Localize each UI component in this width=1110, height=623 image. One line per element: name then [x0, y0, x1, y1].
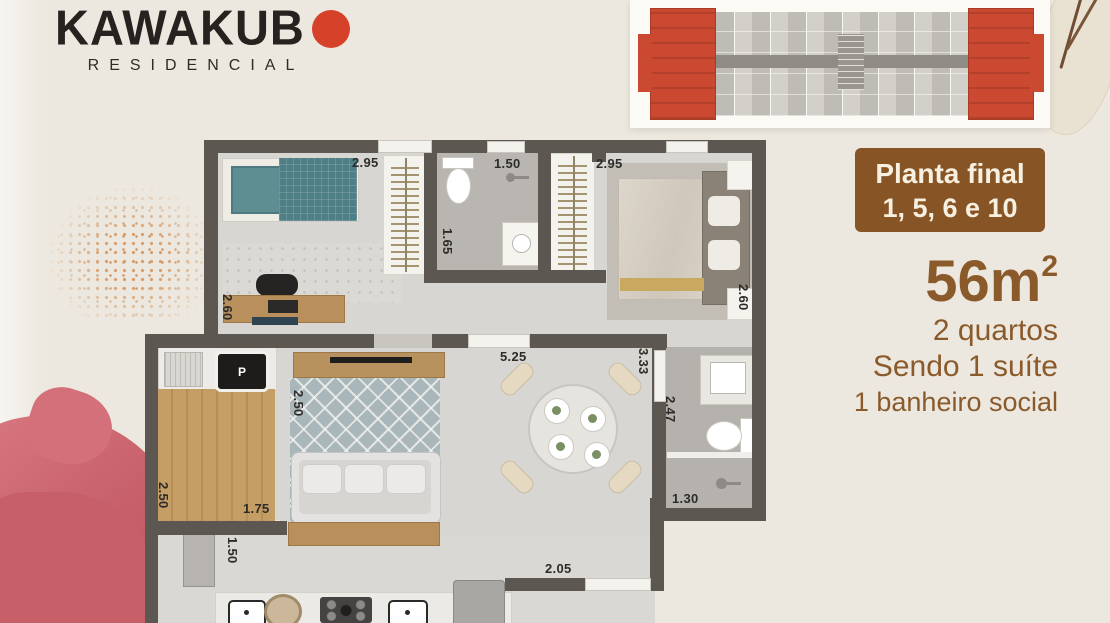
- area-value: 56m 2: [770, 252, 1058, 313]
- hangers-icon: [391, 162, 419, 268]
- tv-sideboard: [293, 352, 445, 378]
- refrigerator: [453, 580, 505, 623]
- red-sun-dot-icon: [312, 10, 350, 48]
- area-superscript: 2: [1041, 252, 1058, 282]
- dim-living-width: 5.25: [500, 350, 527, 363]
- hangers-icon: [558, 160, 587, 267]
- bed-blanket-teal: [279, 158, 357, 221]
- wardrobe-bedroom2: [383, 155, 427, 275]
- dim-balcony-depth: 2.50: [157, 482, 170, 509]
- wall: [538, 140, 551, 280]
- shower-divider: [667, 452, 753, 458]
- dim-balcony-width: 1.75: [243, 502, 270, 515]
- window: [666, 141, 708, 153]
- office-chair: [256, 274, 298, 296]
- feature-bathroom: 1 banheiro social: [770, 385, 1058, 419]
- window: [585, 578, 651, 591]
- sofa-cushion: [344, 464, 384, 494]
- console-table: [288, 522, 440, 546]
- pass-through-opening: [374, 334, 432, 348]
- place-setting: [580, 406, 606, 432]
- dim-suite-bath-depth: 1.65: [441, 228, 454, 255]
- tv-icon: [330, 357, 412, 363]
- stove-cooktop: [320, 597, 372, 623]
- paint-speckles-orange: [48, 185, 203, 320]
- bed-throw-tan: [620, 278, 704, 291]
- place-setting: [584, 442, 610, 468]
- place-setting: [544, 398, 570, 424]
- unit-specs: 56m 2 2 quartos Sendo 1 suíte 1 banheiro…: [770, 252, 1058, 419]
- wall: [424, 270, 606, 283]
- laundry-sink-mark: P: [238, 365, 246, 379]
- dim-tv-area-depth: 2.50: [292, 390, 305, 417]
- plan-badge: Planta final 1, 5, 6 e 10: [855, 148, 1045, 232]
- badge-title: Planta final: [875, 156, 1024, 192]
- shower-arm-icon: [725, 482, 741, 485]
- kitchen-sink: [388, 600, 428, 623]
- badge-units: 1, 5, 6 e 10: [882, 192, 1017, 224]
- bed-pillow: [708, 240, 740, 270]
- toilet-bowl: [706, 421, 742, 451]
- sink-basin-icon: [710, 362, 746, 394]
- keyplan-highlighted-unit-right: [968, 8, 1034, 120]
- dim-office-depth: 2.60: [221, 294, 234, 321]
- rug-bedroom2: [222, 243, 402, 303]
- brand-name: KAWAKUB: [55, 3, 305, 52]
- sofa-cushion: [386, 464, 426, 494]
- laundry-sink: P: [215, 351, 269, 392]
- feature-bedrooms: 2 quartos: [770, 313, 1058, 349]
- dim-kitchen-width: 2.05: [545, 562, 572, 575]
- keyplan-highlighted-unit-left-wing: [638, 34, 652, 92]
- window: [487, 141, 525, 153]
- dim-bedroom1-depth: 2.60: [737, 284, 750, 311]
- wall: [650, 498, 664, 591]
- wall: [204, 140, 218, 340]
- door-opening: [468, 334, 530, 348]
- door-opening: [654, 350, 666, 402]
- wardrobe-bedroom1: [550, 153, 595, 274]
- kitchen-sink: [228, 600, 266, 623]
- brand-subtitle: RESIDENCIAL: [62, 57, 330, 75]
- bed-pillow: [708, 196, 740, 226]
- kitchen-cabinet: [183, 530, 215, 587]
- wall: [652, 508, 766, 521]
- dim-social-bath-width: 1.30: [672, 492, 699, 505]
- dim-bedroom2-width: 2.95: [352, 156, 379, 169]
- keyplan-card: [630, 0, 1050, 128]
- area-number: 56m: [925, 252, 1041, 313]
- keyplan-highlighted-unit-left: [650, 8, 716, 120]
- flyer-canvas: KAWAKUB RESIDENCIAL Planta final 1, 5, 6…: [0, 0, 1110, 623]
- brand-logo: KAWAKUB: [55, 4, 350, 51]
- wall: [145, 334, 158, 623]
- keyplan-stair-core: [838, 34, 864, 90]
- dim-bedroom1-width: 2.95: [596, 157, 623, 170]
- sink-basin-icon: [512, 234, 531, 253]
- fruit-bowl-icon: [264, 594, 302, 623]
- washboard-icon: [164, 352, 203, 387]
- bed-pillow-teal: [231, 166, 281, 214]
- window: [378, 140, 432, 153]
- wall: [505, 578, 587, 591]
- keyboard-icon: [252, 317, 298, 325]
- laptop-icon: [268, 300, 298, 313]
- place-setting: [548, 434, 574, 460]
- feature-suite: Sendo 1 suíte: [770, 349, 1058, 385]
- dim-living-depth: 3.33: [637, 348, 650, 375]
- dim-service-corridor: 1.50: [226, 537, 239, 564]
- keyplan-highlighted-unit-right-wing: [1030, 34, 1044, 92]
- shower-arm-icon: [513, 176, 529, 179]
- dim-social-bath-depth: 2.47: [664, 396, 677, 423]
- wall: [424, 140, 437, 280]
- toilet-bowl: [446, 168, 471, 204]
- sofa-cushion: [302, 464, 342, 494]
- nightstand: [727, 160, 755, 190]
- wall: [752, 140, 766, 521]
- wall: [145, 521, 287, 535]
- dim-suite-bath-width: 1.50: [494, 157, 521, 170]
